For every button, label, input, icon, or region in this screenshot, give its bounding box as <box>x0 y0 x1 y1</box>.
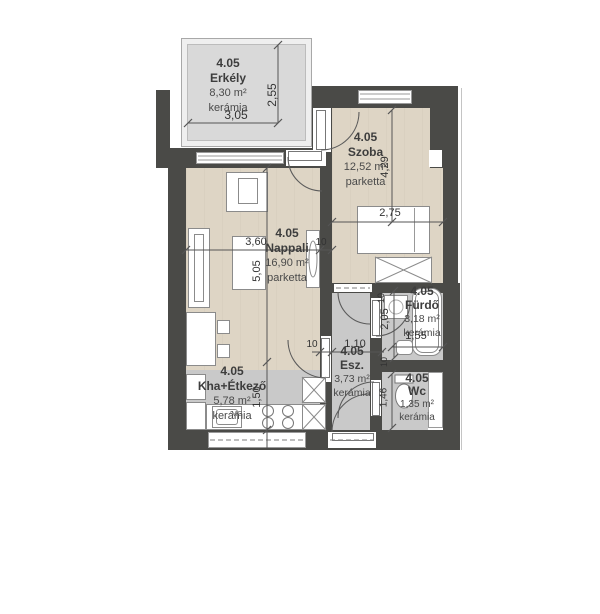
door-leaf-entry <box>332 433 374 441</box>
dim-esz-width: 1,10 <box>338 338 372 350</box>
niche-szoba-right <box>429 150 442 167</box>
dim-wall-10-a: 10 <box>312 237 330 248</box>
dim-wall-10-c: 10 <box>376 288 386 308</box>
door-leaf-balcony-nappali <box>288 151 322 161</box>
room-label-wc: 4.05 Wc 1,35 m² kerámia <box>394 372 440 424</box>
erkely-area: 8,30 m² <box>183 86 273 101</box>
bed-divider <box>414 208 415 252</box>
dim-kitchen-height: 1,50 <box>251 377 263 417</box>
dining-chair-1 <box>217 320 230 334</box>
erkely-name: Erkély <box>183 71 273 86</box>
wall-stub-left-of-balcony <box>156 90 170 152</box>
shaft-box-1 <box>302 377 326 403</box>
shaft-box-2 <box>302 404 326 430</box>
wardrobe <box>375 257 432 283</box>
furdo-code: 4.05 <box>397 284 447 298</box>
dim-wall-10-d: 10 <box>379 352 389 372</box>
opening-szoba-esz <box>334 284 372 292</box>
dim-wc-height: 1,46 <box>379 378 390 418</box>
window-kitchen-bottom <box>208 432 306 448</box>
washbasin <box>396 340 413 355</box>
window-nappali-top <box>196 152 284 164</box>
erkely-code: 4.05 <box>183 56 273 71</box>
wc-name: Wc <box>394 385 440 398</box>
dim-balcony-width: 3,05 <box>216 108 256 122</box>
tv-cabinet-inner <box>238 178 258 204</box>
szoba-floor: parketta <box>323 175 408 190</box>
furdo-area: 3,18 m² <box>397 312 447 326</box>
kha-name: Kha+Étkező <box>176 379 288 394</box>
sofa-seat <box>194 234 204 302</box>
furdo-name: Fürdő <box>397 298 447 312</box>
szoba-area: 12,52 m² <box>323 160 408 175</box>
dim-szoba-height: 4,29 <box>379 147 391 187</box>
dim-szoba-width: 2,75 <box>372 207 408 219</box>
dim-nappali-height: 5,05 <box>251 251 263 291</box>
window-szoba-top <box>358 90 412 104</box>
szoba-name: Szoba <box>323 145 408 160</box>
dim-furdo-width: 1,55 <box>398 330 434 342</box>
kha-area: 5,78 m² <box>176 394 288 409</box>
dim-nappali-width: 3,60 <box>238 236 274 248</box>
kha-code: 4.05 <box>176 364 288 379</box>
dim-wall-10-b: 10 <box>304 339 320 350</box>
dining-table <box>186 312 216 366</box>
esz-name: Esz. <box>328 358 376 372</box>
room-label-erkely: 4.05 Erkély 8,30 m² kerámia <box>183 56 273 116</box>
outer-face-line <box>461 88 462 450</box>
wc-floor: kerámia <box>394 411 440 424</box>
dim-balcony-height: 2,55 <box>265 75 279 115</box>
wc-area: 1,35 m² <box>394 398 440 411</box>
szoba-code: 4.05 <box>323 130 408 145</box>
wall-right-mid <box>443 168 458 283</box>
esz-floor: kerámia <box>328 386 376 400</box>
floor-plan: 4.05 Erkély 8,30 m² kerámia 4.05 Szoba 1… <box>0 0 600 614</box>
sink-mg-label: MG <box>228 411 246 418</box>
dining-chair-2 <box>217 344 230 358</box>
room-label-szoba: 4.05 Szoba 12,52 m² parketta <box>323 130 408 190</box>
esz-area: 3,73 m² <box>328 372 376 386</box>
room-label-esz: 4.05 Esz. 3,73 m² kerámia <box>328 344 376 400</box>
